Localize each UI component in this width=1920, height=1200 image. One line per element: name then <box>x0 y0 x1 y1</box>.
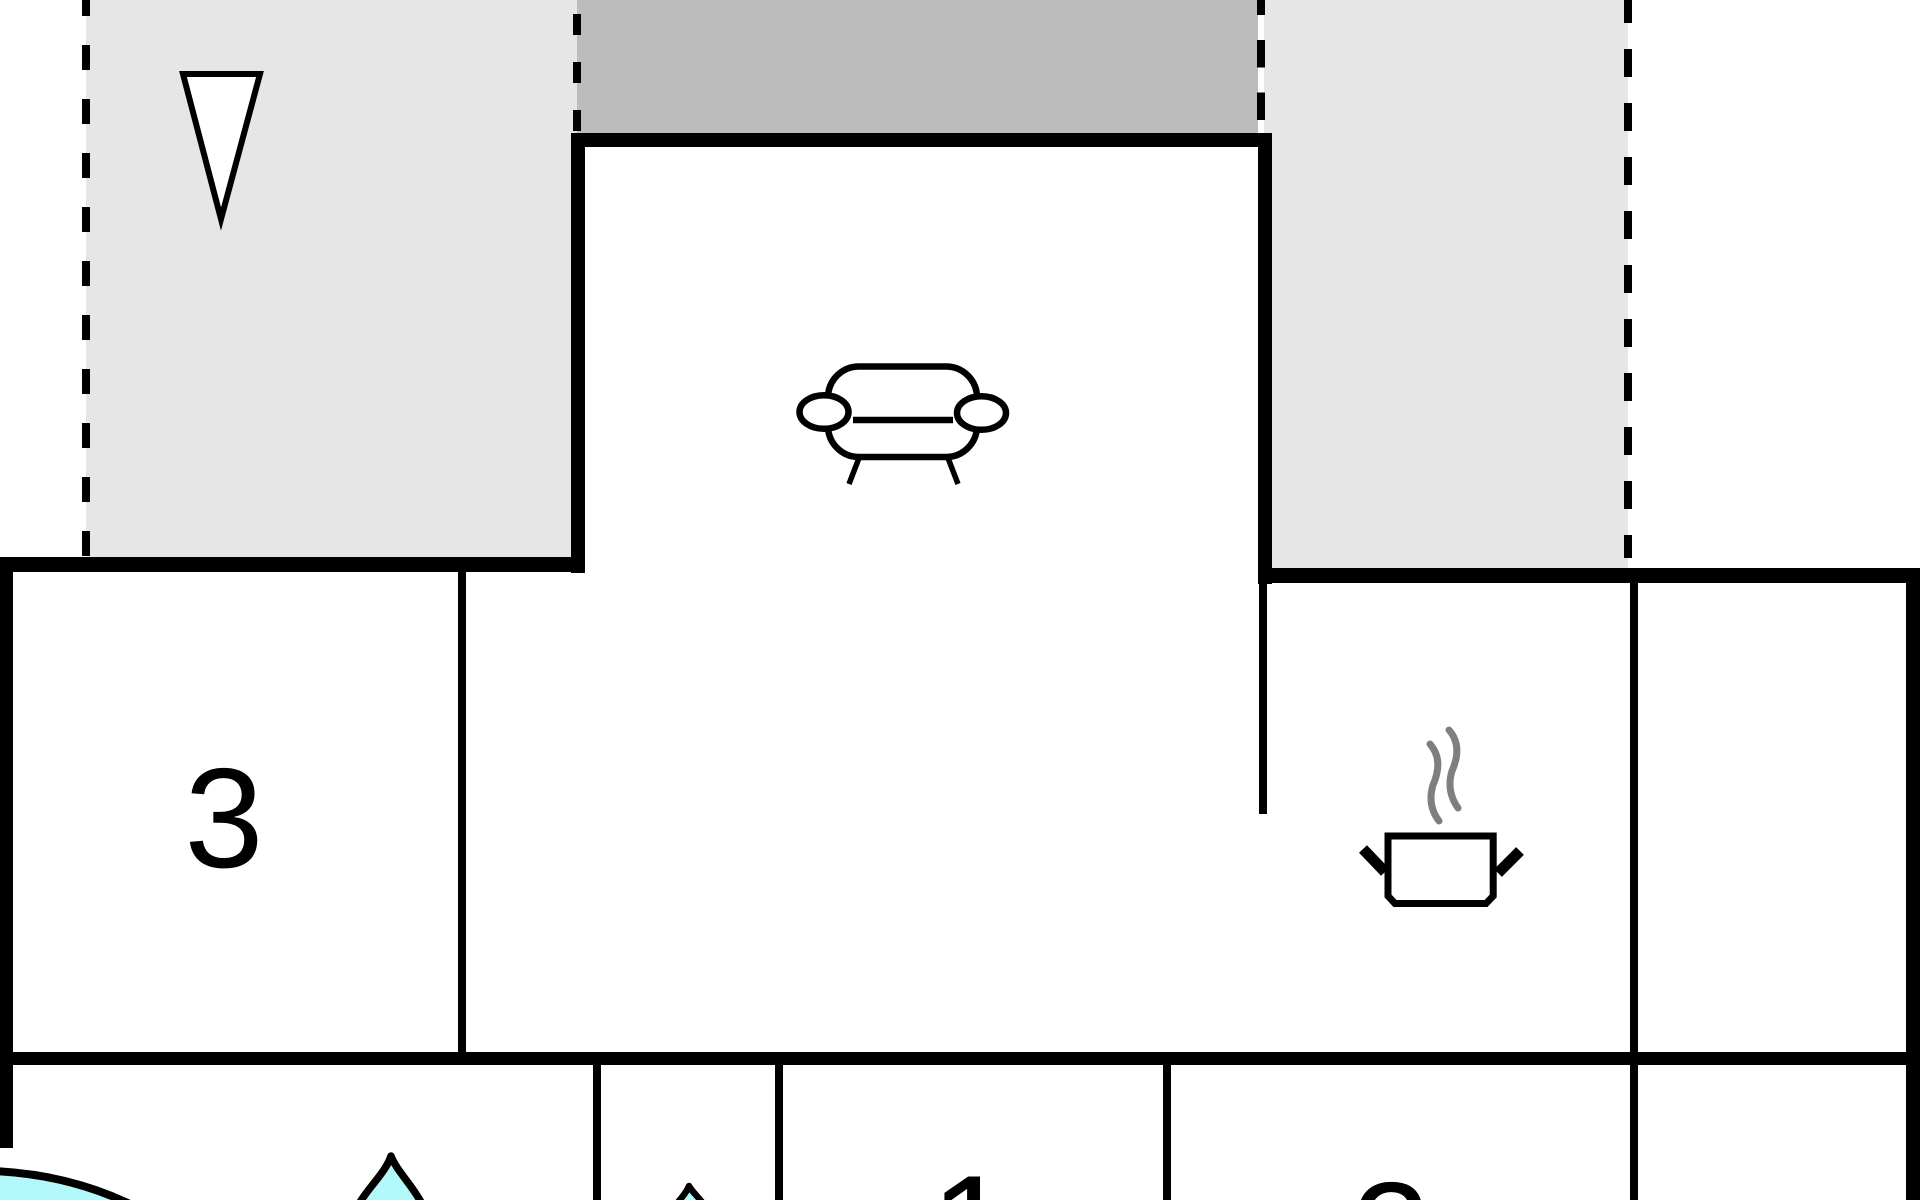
svg-text:2: 2 <box>1352 1153 1431 1200</box>
svg-text:1: 1 <box>930 1145 1011 1200</box>
svg-text:3: 3 <box>185 739 264 898</box>
